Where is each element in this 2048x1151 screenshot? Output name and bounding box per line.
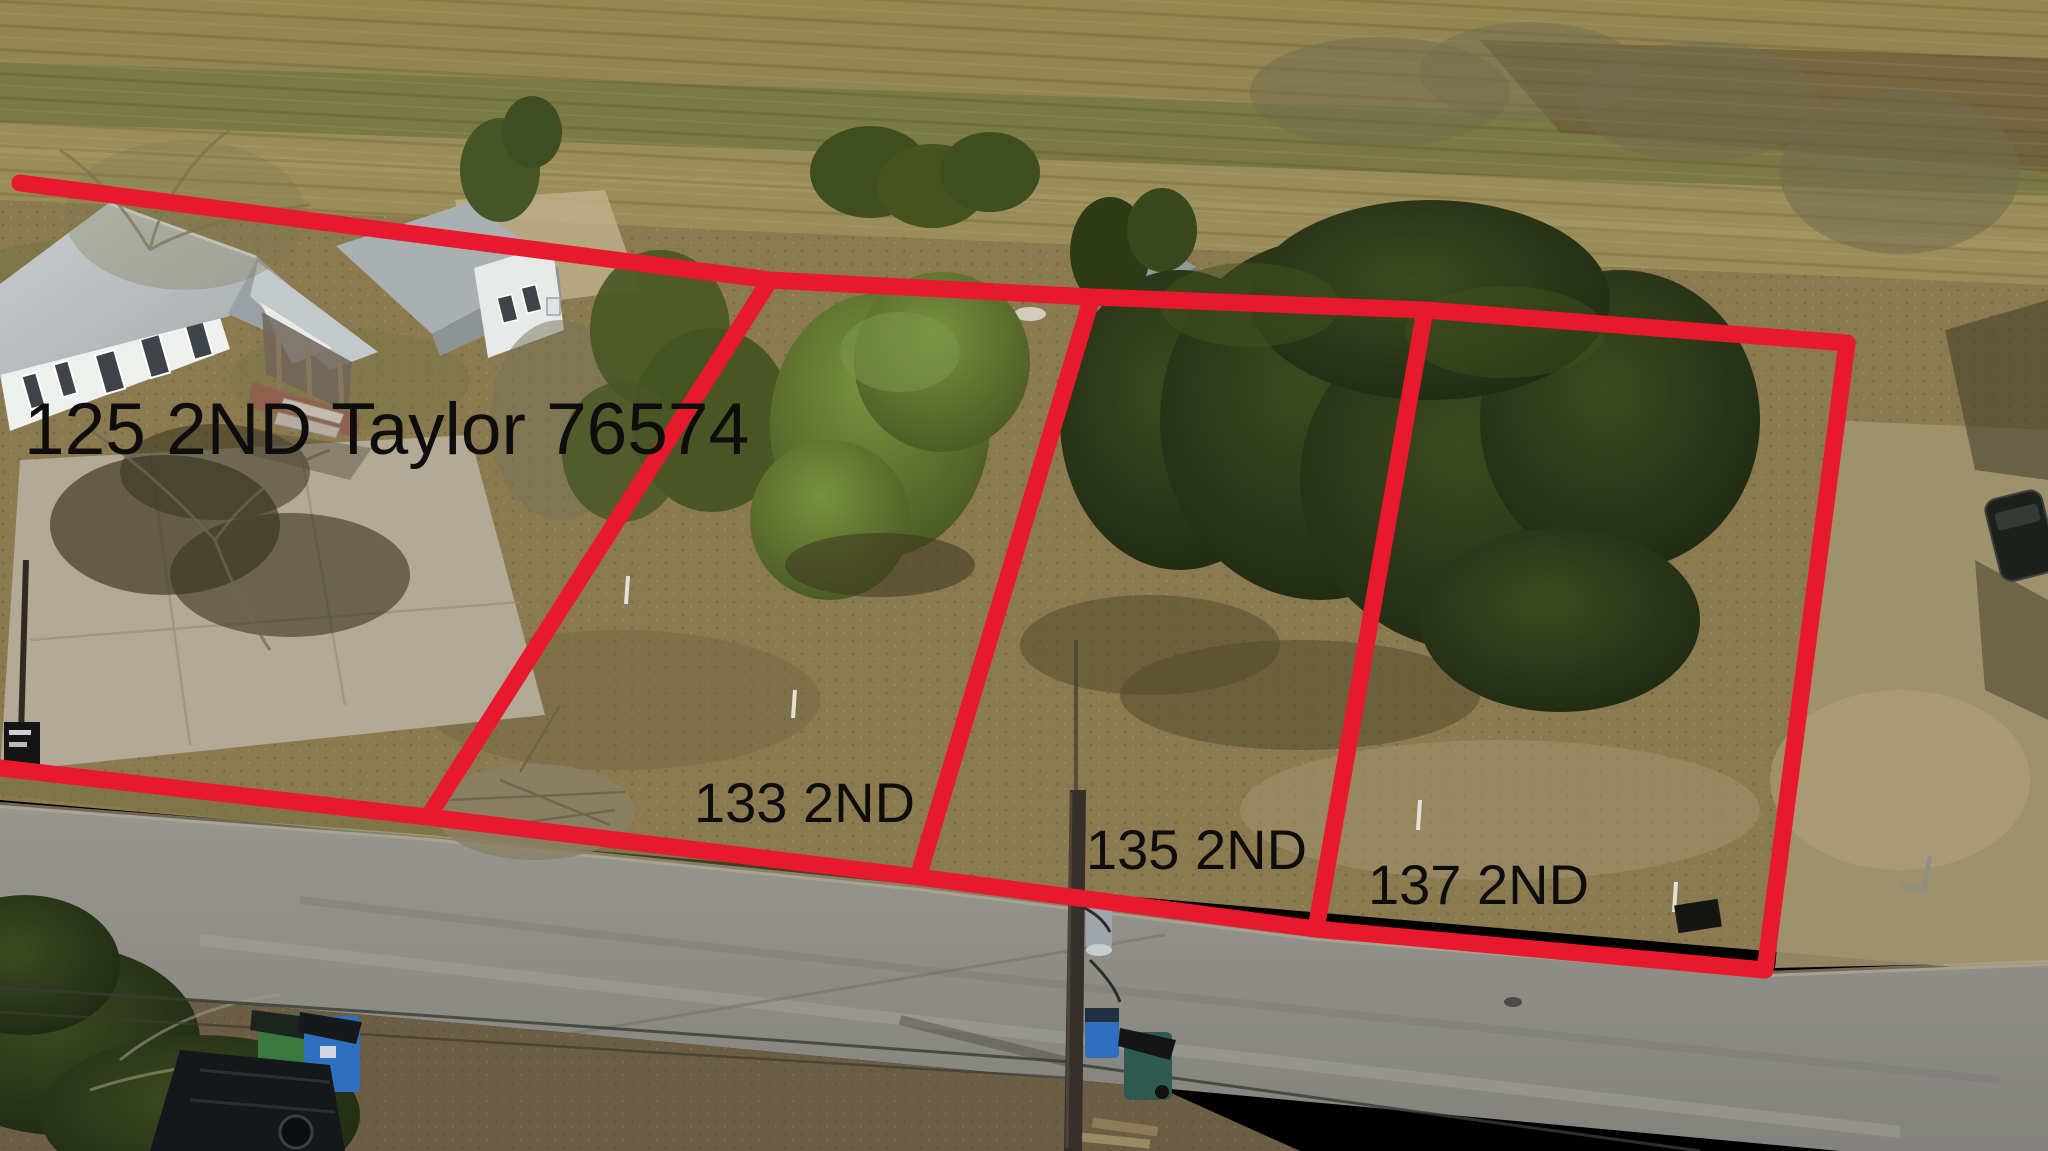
lot-label-125: 125 2ND Taylor 76574 — [24, 392, 749, 469]
boundary-divider-133-135 — [918, 297, 1092, 877]
lot-boundary-lines — [0, 0, 2048, 1151]
lot-label-137: 137 2ND — [1368, 856, 1589, 915]
boundary-divider-135-137 — [1316, 310, 1425, 929]
boundary-divider-125-133 — [428, 280, 770, 817]
lot-label-135: 135 2ND — [1086, 821, 1307, 880]
boundary-top-boundary — [20, 183, 1847, 343]
lot-label-133: 133 2ND — [694, 774, 915, 833]
boundary-right-boundary — [1765, 343, 1847, 970]
aerial-lot-photo: 125 2ND Taylor 76574 133 2ND 135 2ND 137… — [0, 0, 2048, 1151]
